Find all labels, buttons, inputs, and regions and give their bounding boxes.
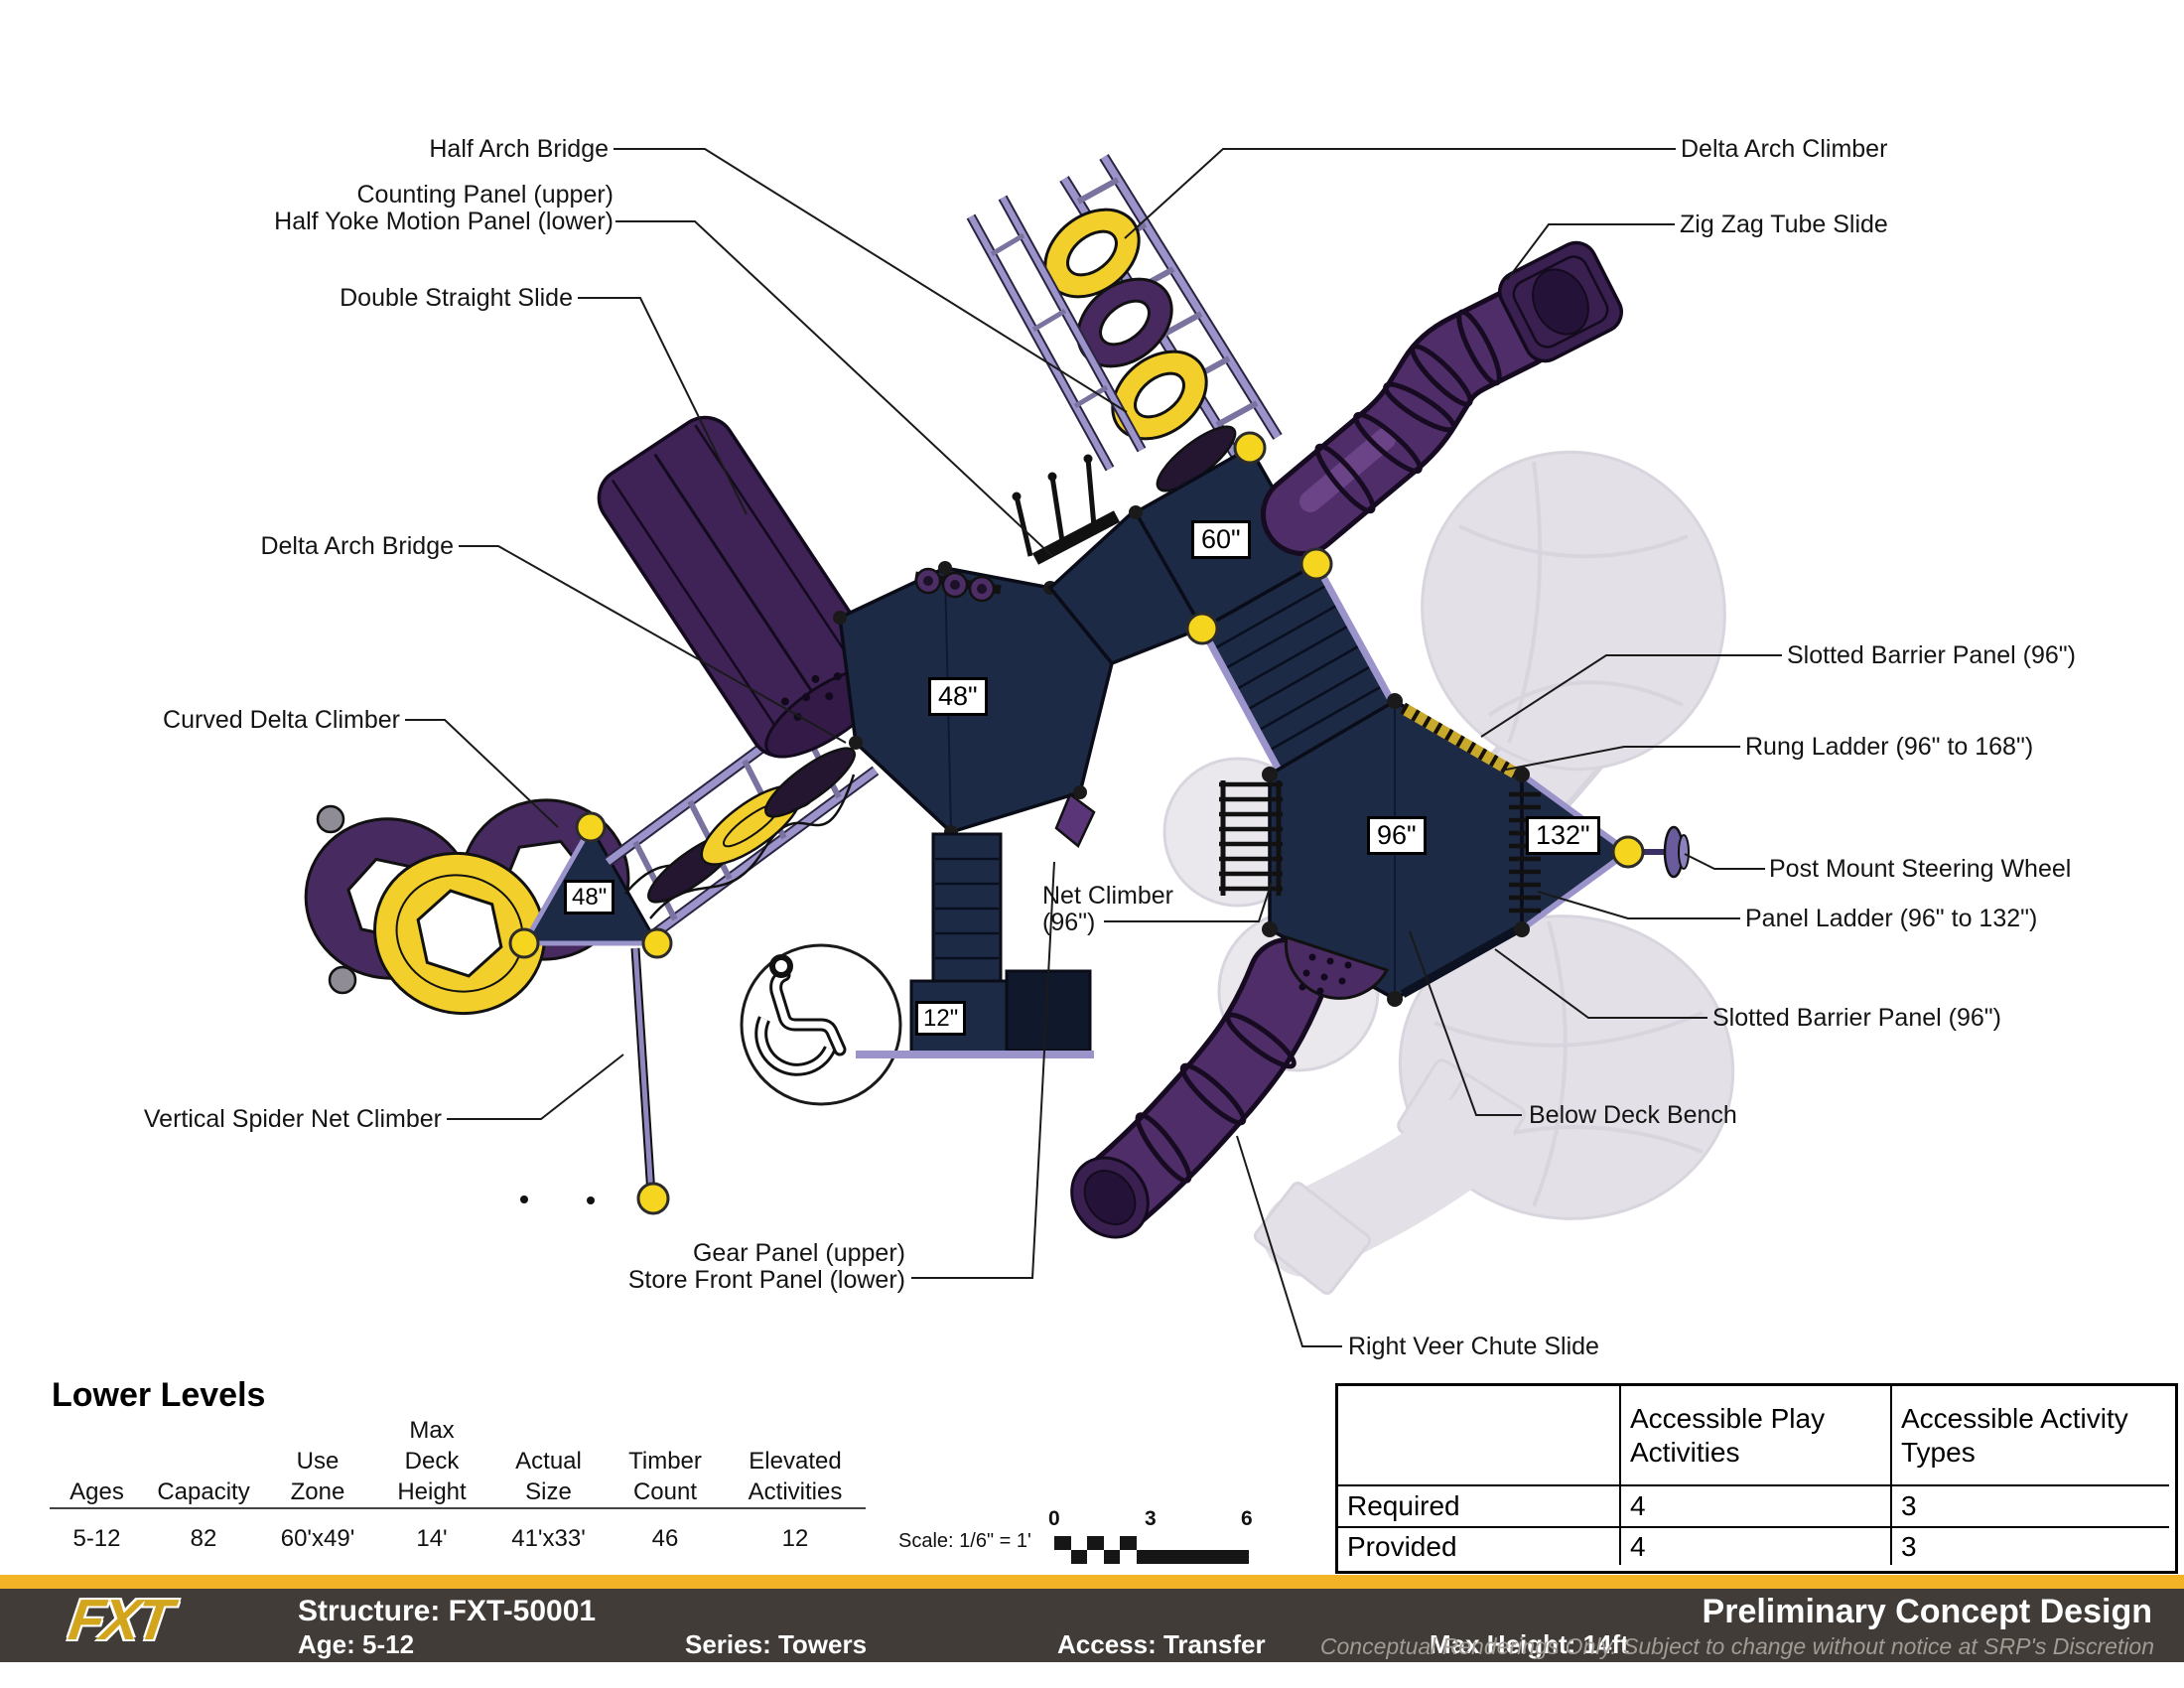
header-line: Use	[263, 1446, 372, 1477]
header-line: Count	[606, 1477, 725, 1507]
header-line: Zone	[263, 1477, 372, 1507]
spec-value-capacity: 82	[144, 1525, 263, 1553]
callout-right-veer-chute-slide: Right Veer Chute Slide	[1348, 1334, 1599, 1360]
footer-title: Preliminary Concept Design	[1703, 1593, 2152, 1631]
spec-header-max-deck-height: MaxDeckHeight	[372, 1415, 491, 1507]
acc-provided-types: 3	[1890, 1526, 2169, 1565]
callout-slotted-barrier-upper: Slotted Barrier Panel (96")	[1787, 642, 2076, 669]
deck-label-48-left: 48"	[564, 880, 614, 914]
deck-label-12: 12"	[915, 1001, 966, 1036]
acc-row-required-label: Required	[1338, 1484, 1619, 1526]
concept-design-sheet: Half Arch Bridge Counting Panel (upper) …	[0, 0, 2184, 1688]
spec-values-row: 5-12 82 60'x49' 14' 41'x33' 46 12	[50, 1525, 866, 1553]
callout-post-mount-steering-wheel: Post Mount Steering Wheel	[1769, 856, 2071, 883]
spec-value-elevated-activities: 12	[725, 1525, 866, 1553]
lower-levels-title: Lower Levels	[52, 1376, 265, 1415]
spec-value-max-deck-height: 14'	[372, 1525, 491, 1553]
spec-value-ages: 5-12	[50, 1525, 144, 1553]
footer-age: Age: 5-12	[298, 1629, 414, 1660]
callout-line: (96")	[1042, 910, 1173, 936]
right-veer-chute-slide	[1056, 978, 1299, 1252]
acc-header-blank	[1338, 1386, 1619, 1484]
header-line: Size	[491, 1477, 606, 1507]
callout-line: Store Front Panel (lower)	[628, 1267, 905, 1294]
scale-label: Scale: 1/6" = 1'	[898, 1530, 1031, 1553]
spec-value-timber-count: 46	[606, 1525, 725, 1553]
footer-access: Access: Transfer	[1057, 1629, 1266, 1660]
callout-zig-zag-tube-slide: Zig Zag Tube Slide	[1680, 211, 1888, 238]
header-line: Elevated	[725, 1446, 866, 1477]
accessibility-table: Accessible Play Activities Accessible Ac…	[1335, 1383, 2178, 1574]
lower-levels-table: Ages Capacity UseZone MaxDeckHeight Actu…	[50, 1415, 866, 1553]
callout-vertical-spider-net-climber: Vertical Spider Net Climber	[144, 1106, 442, 1133]
callout-half-arch-bridge: Half Arch Bridge	[429, 136, 609, 163]
fxt-logo: FXT	[65, 1587, 174, 1653]
gray-ball	[330, 967, 355, 993]
acc-header-activity-types: Accessible Activity Types	[1890, 1386, 2169, 1484]
callout-net-climber: Net Climber (96")	[1042, 883, 1173, 936]
deck-label-60: 60"	[1191, 520, 1251, 559]
scale-tick-0: 0	[1048, 1507, 1060, 1531]
spec-header-use-zone: UseZone	[263, 1415, 372, 1507]
store-front-panel	[1056, 794, 1094, 846]
spec-header-actual-size: ActualSize	[491, 1415, 606, 1507]
footer-disclaimer: Conceptual Renderings Only. Subject to c…	[1320, 1633, 2154, 1660]
scale-tick-3: 3	[1145, 1507, 1157, 1531]
callout-delta-arch-climber: Delta Arch Climber	[1681, 136, 1887, 163]
spec-header-row: Ages Capacity UseZone MaxDeckHeight Actu…	[50, 1415, 866, 1509]
footer-structure: Structure: FXT-50001	[298, 1595, 596, 1628]
callout-curved-delta-climber: Curved Delta Climber	[163, 707, 400, 734]
spec-value-use-zone: 60'x49'	[263, 1525, 372, 1553]
spec-value-actual-size: 41'x33'	[491, 1525, 606, 1553]
gray-ball	[318, 806, 343, 832]
header-line: Deck	[372, 1446, 491, 1477]
header-line: Max	[372, 1415, 491, 1446]
acc-row-provided-label: Provided	[1338, 1526, 1619, 1565]
acc-required-play: 4	[1619, 1484, 1890, 1526]
wheelchair-accessible-icon	[742, 945, 900, 1104]
header-line: Height	[372, 1477, 491, 1507]
callout-delta-arch-bridge: Delta Arch Bridge	[260, 533, 454, 560]
vertical-spider-net-climber	[520, 948, 651, 1204]
callout-slotted-barrier-lower: Slotted Barrier Panel (96")	[1712, 1005, 2001, 1032]
callout-double-straight-slide: Double Straight Slide	[340, 285, 573, 312]
header-line: Actual	[491, 1446, 606, 1477]
spec-header-capacity: Capacity	[144, 1415, 263, 1507]
acc-header-play-activities: Accessible Play Activities	[1619, 1386, 1890, 1484]
header-line: Capacity	[144, 1477, 263, 1507]
spec-header-ages: Ages	[50, 1415, 144, 1507]
spec-header-timber-count: TimberCount	[606, 1415, 725, 1507]
header-line: Ages	[50, 1477, 144, 1507]
callout-rung-ladder: Rung Ladder (96" to 168")	[1745, 734, 2033, 761]
callout-counting-panel: Counting Panel (upper) Half Yoke Motion …	[274, 182, 614, 235]
post-mount-steering-wheel	[1641, 827, 1689, 877]
deck-label-48-main: 48"	[928, 677, 988, 716]
callout-line: Gear Panel (upper)	[628, 1240, 905, 1267]
deck-label-96: 96"	[1367, 816, 1427, 855]
footer-series: Series: Towers	[685, 1629, 867, 1660]
callout-below-deck-bench: Below Deck Bench	[1529, 1102, 1737, 1129]
callout-line: Counting Panel (upper)	[274, 182, 614, 209]
scale-tick-6: 6	[1241, 1507, 1253, 1531]
callout-gear-panel: Gear Panel (upper) Store Front Panel (lo…	[628, 1240, 905, 1294]
callout-panel-ladder: Panel Ladder (96" to 132")	[1745, 906, 2037, 932]
deck-label-132: 132"	[1526, 816, 1600, 855]
acc-required-types: 3	[1890, 1484, 2169, 1526]
spec-header-elevated-activities: ElevatedActivities	[725, 1415, 866, 1507]
acc-provided-play: 4	[1619, 1526, 1890, 1565]
callout-line: Net Climber	[1042, 883, 1173, 910]
callout-line: Half Yoke Motion Panel (lower)	[274, 209, 614, 235]
header-line: Timber	[606, 1446, 725, 1477]
footer-yellow-stripe	[0, 1575, 2184, 1589]
header-line: Activities	[725, 1477, 866, 1507]
